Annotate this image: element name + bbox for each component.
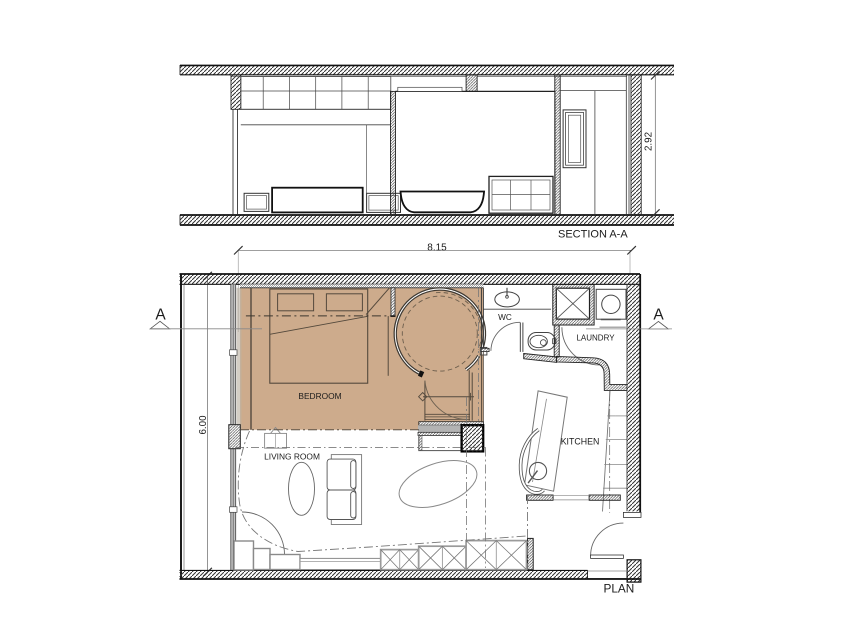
svg-text:8.15: 8.15 bbox=[427, 243, 447, 254]
svg-text:2.92: 2.92 bbox=[644, 132, 655, 151]
svg-text:WC: WC bbox=[498, 313, 512, 322]
svg-text:PLAN: PLAN bbox=[604, 581, 635, 595]
svg-text:LIVING ROOM: LIVING ROOM bbox=[264, 451, 320, 461]
svg-text:LAUNDRY: LAUNDRY bbox=[576, 333, 615, 342]
svg-text:BEDROOM: BEDROOM bbox=[298, 391, 341, 401]
svg-text:KITCHEN: KITCHEN bbox=[561, 437, 600, 447]
svg-text:SECTION A-A: SECTION A-A bbox=[558, 229, 628, 241]
svg-text:A: A bbox=[653, 306, 664, 323]
svg-text:6.00: 6.00 bbox=[198, 415, 209, 435]
svg-text:A: A bbox=[155, 306, 166, 323]
